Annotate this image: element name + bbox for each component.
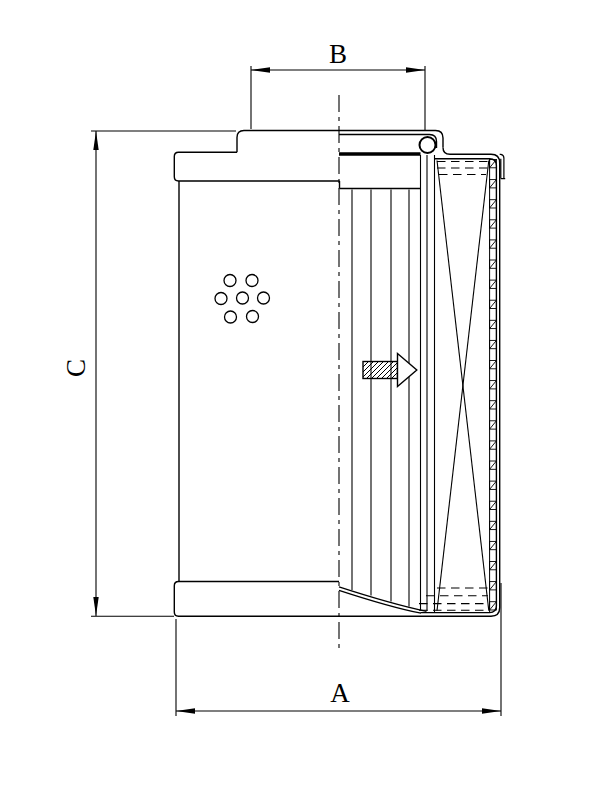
seam-square-hatch (490, 381, 497, 389)
seam-square-hatch (490, 562, 497, 570)
seam-square-hatch (490, 340, 497, 348)
drawing-svg: B C A (0, 0, 612, 792)
end-cap-inner-line (339, 135, 437, 149)
pleated-media (339, 155, 435, 613)
seam-square-hatch (490, 220, 497, 228)
end-cap-bond-top (437, 162, 488, 175)
seam-square-hatch (490, 541, 497, 549)
seam-square-hatch (490, 501, 497, 509)
seam-square-hatch (490, 260, 497, 268)
end-cap-outline (237, 131, 443, 153)
hole-icon (215, 293, 227, 305)
filter-element-technical-drawing: B C A (0, 0, 612, 792)
dim-c-label: C (61, 359, 91, 377)
seam-square-hatch (490, 481, 497, 489)
dim-a-arrow-left-icon (176, 708, 195, 713)
seam-square-hatch (490, 280, 497, 288)
seam-square-hatch (490, 401, 497, 409)
hole-icon (224, 275, 236, 287)
mounting-collar (174, 152, 420, 188)
dim-c-arrow-down-icon (93, 597, 98, 616)
end-cap-top (237, 131, 443, 155)
seam-square-hatch (490, 421, 497, 429)
dim-c-arrow-up-icon (93, 131, 98, 150)
dim-a-arrow-right-icon (482, 708, 501, 713)
seam-square-hatch (490, 461, 497, 469)
dim-a-label: A (330, 678, 350, 708)
o-ring-seal-icon (420, 137, 436, 153)
hole-icon (247, 311, 259, 323)
hole-icon (225, 311, 237, 323)
hole-icon (237, 292, 249, 304)
shell-top-lip (500, 154, 506, 178)
seam-hatch-squares (490, 160, 497, 611)
dim-b-arrow-left-icon (251, 67, 270, 72)
flow-arrow-head (398, 354, 417, 387)
collar-outline (174, 152, 339, 181)
seam-square-hatch (490, 180, 497, 188)
filter-body (179, 181, 270, 582)
dim-b-arrow-right-icon (406, 67, 425, 72)
dimension-top-width: B (251, 39, 425, 130)
seam-square-hatch (490, 441, 497, 449)
shell-outer-wall (443, 148, 500, 617)
hole-icon (246, 275, 258, 287)
dimension-left-height: C (61, 131, 236, 616)
seam-square-hatch (490, 200, 497, 208)
end-cap-bottom (174, 582, 491, 617)
dim-b-label: B (329, 39, 347, 69)
seam-square-hatch (490, 320, 497, 328)
hole-icon (258, 292, 270, 304)
end-cap-bond-bottom (419, 588, 488, 610)
seam-square-hatch (490, 582, 497, 590)
seam-square-hatch (490, 240, 497, 248)
seam-square-hatch (490, 361, 497, 369)
bottom-band-outline (174, 582, 491, 617)
shell-inner-wall (421, 159, 497, 613)
bypass-holes (215, 275, 270, 324)
seam-square-hatch (490, 521, 497, 529)
media-bottom-curve (339, 587, 427, 612)
flow-arrow-shaft (363, 362, 398, 379)
seam-square-hatch (490, 160, 497, 168)
seam-square-hatch (490, 300, 497, 308)
